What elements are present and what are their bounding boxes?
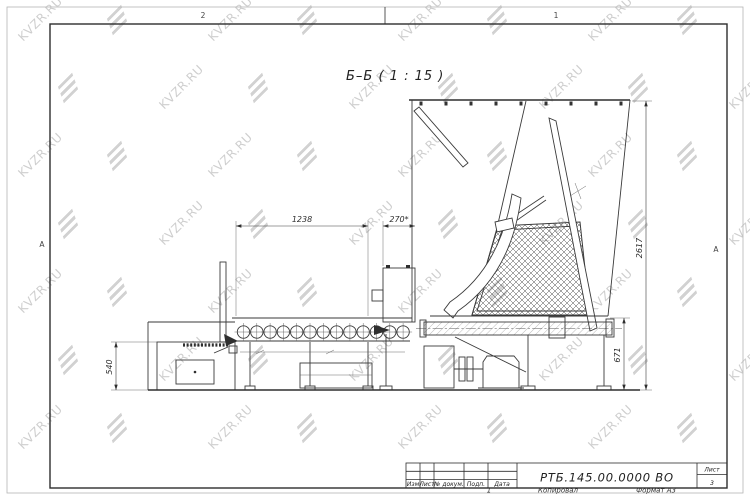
dimension-2617: 2617 [632,101,652,390]
tb-sheet-number: 3 [710,480,714,487]
footer-copy: Копировал [538,487,579,495]
drawing-sheet: KVZR.RUKVZR.RUKVZR.RUKVZR.RUKVZR.RUKVZR.… [0,0,750,500]
hopper-right-wall [608,100,630,316]
bolt-mark [445,102,448,106]
bolt-mark [420,102,423,106]
dim-text-671: 671 [613,347,622,362]
tb-col-list: Лист [418,481,435,488]
roller-conveyor [224,318,412,390]
dimension-540: 540 [105,342,157,390]
dimension-270: 270* [383,215,415,266]
belt-end-guide [224,334,238,346]
hopper [409,100,630,331]
drive-unit [424,346,524,388]
fold-mark-right: A [713,245,719,254]
conveyor-rollers [235,323,413,341]
dim-text-2617: 2617 [635,237,644,258]
footer-zone: 1 [487,487,491,495]
bolt-mark [620,102,623,106]
tb-col-doc: № докум. [433,481,464,488]
feeder-post [220,262,226,342]
bolt-mark [545,102,548,106]
bolt-mark [595,102,598,106]
dim-text-1238: 1238 [292,215,312,224]
bolt-mark [520,102,523,106]
motor [483,356,519,388]
gearbox [424,346,454,388]
dim-text-540: 540 [105,359,114,374]
conveyor-base-box [300,363,372,388]
dim-text-270: 270* [389,215,408,224]
engineering-drawing: 2 1 A A Б–Б ( 1 : 15 ) [0,0,750,500]
tb-col-podp: Подп. [467,481,485,488]
hopper-top-bolts [420,102,623,106]
hopper-brace [414,107,468,167]
tb-col-data: Дата [493,481,510,488]
zone-number-top-right: 1 [554,11,559,20]
tb-designation: РТБ.145.00.0000 ВО [540,471,674,485]
tb-sheet-label: Лист [703,467,720,474]
bolt-mark [570,102,573,106]
inner-frame [50,24,727,488]
bolt-mark [495,102,498,106]
footer-format: Формат А3 [636,487,676,495]
boot-inspection-door [372,290,383,301]
bolt-mark [470,102,473,106]
tb-col-izm: Изм [407,481,420,488]
feeder-unit [148,262,237,390]
fold-mark-left: A [39,240,45,249]
title-block: Изм Лист № докум. Подп. Дата РТБ.145.00.… [406,463,727,488]
dimension-1238: 1238 [236,215,368,316]
zone-number-top-left: 2 [201,11,206,20]
view-title: Б–Б ( 1 : 15 ) [346,69,444,84]
dimension-671: 671 [610,318,630,390]
